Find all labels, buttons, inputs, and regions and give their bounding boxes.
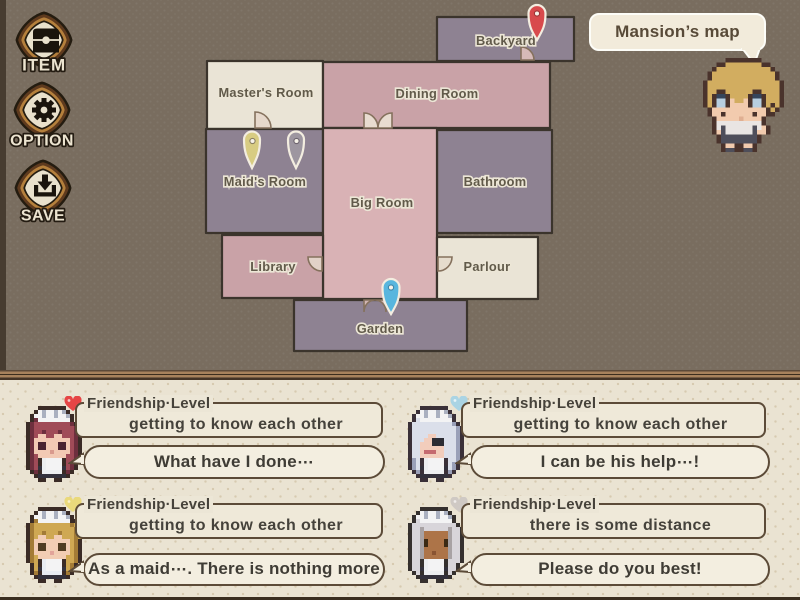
svg-text:Master's Room: Master's Room xyxy=(218,85,313,100)
svg-text:Dining Room: Dining Room xyxy=(396,86,479,101)
svg-text:Parlour: Parlour xyxy=(464,259,511,274)
svg-text:Backyard: Backyard xyxy=(476,33,536,48)
svg-text:Bathroom: Bathroom xyxy=(464,174,527,189)
svg-text:SAVE: SAVE xyxy=(21,208,65,225)
svg-text:OPTION: OPTION xyxy=(10,133,74,150)
svg-text:Garden: Garden xyxy=(357,321,404,336)
svg-text:ITEM: ITEM xyxy=(22,56,66,75)
svg-text:Big Room: Big Room xyxy=(351,195,414,210)
svg-text:Library: Library xyxy=(250,259,296,274)
svg-text:Maid's Room: Maid's Room xyxy=(224,174,306,189)
